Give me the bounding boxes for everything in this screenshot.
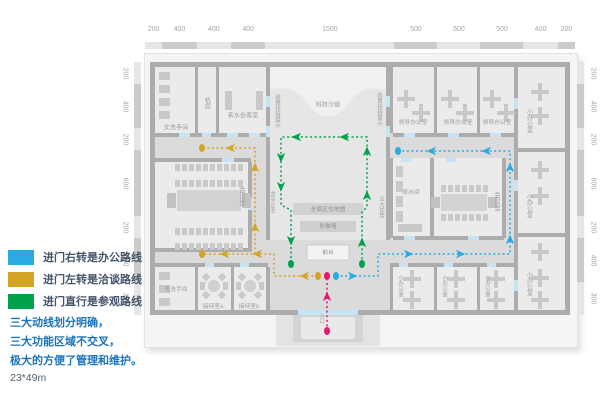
legend: 进门右转是办公路线进门左转是洽谈路线进门直行是参观路线 (8, 246, 142, 312)
chair (203, 228, 208, 235)
chair (182, 180, 187, 187)
wall (195, 267, 198, 310)
fixture (159, 98, 170, 106)
chair (210, 164, 215, 171)
desk-cross (531, 194, 549, 198)
chair (217, 180, 222, 187)
room-label: 前台 (322, 248, 334, 256)
chair (231, 243, 236, 250)
wall (390, 263, 393, 310)
table (177, 190, 241, 211)
chair (476, 214, 481, 221)
door-mark (514, 98, 518, 109)
room-label: 龙头企业 (269, 190, 276, 214)
office-route-endpoint (395, 147, 401, 155)
talk-route-endpoint (199, 250, 205, 258)
chair (182, 243, 187, 250)
legend-label: 进门右转是办公路线 (43, 249, 142, 265)
chair (189, 164, 194, 171)
table-end (167, 193, 176, 208)
chair (203, 180, 208, 187)
chair (203, 164, 208, 171)
door-mark (205, 263, 214, 267)
furniture (225, 91, 232, 110)
chair (448, 214, 453, 221)
chair (175, 228, 180, 235)
chair (182, 164, 187, 171)
room-label: 女洗手间 (164, 124, 189, 132)
note-line: 三大动线划分明确， (10, 314, 142, 333)
wall (390, 158, 393, 238)
chair (196, 164, 201, 171)
room-label: 形象墙 (319, 222, 337, 230)
round-table (244, 280, 256, 292)
desk-cross (531, 276, 549, 280)
floor-plan-page: 2004004004001500500500500400200 20040020… (0, 0, 600, 400)
door-mark (404, 236, 415, 240)
door-mark (444, 263, 453, 267)
chair (441, 214, 446, 221)
wall (434, 267, 437, 310)
wall (477, 267, 480, 310)
chair (462, 214, 467, 221)
door-mark (266, 96, 270, 107)
fixture (159, 272, 170, 280)
room-label: 领导办公室 (483, 118, 512, 126)
door-mark (386, 126, 390, 137)
room-label: 接待室a (203, 302, 224, 310)
room-label: 男洗手间 (164, 285, 187, 293)
side-table (259, 282, 264, 290)
wall (390, 67, 393, 133)
door-mark (240, 263, 249, 267)
chair (217, 228, 222, 235)
door-mark (202, 133, 211, 137)
fixture (159, 72, 170, 80)
desk-cross (531, 90, 549, 94)
door-mark (222, 158, 234, 162)
legend-swatch-visit-route (8, 294, 34, 309)
door-mark (298, 310, 358, 315)
chair (196, 243, 201, 250)
wall (477, 67, 480, 133)
wall (358, 310, 570, 315)
desk-cross (531, 298, 549, 302)
room-label: 茶水会客室 (228, 112, 259, 120)
wall (195, 67, 198, 133)
chair (462, 185, 467, 192)
chair (224, 164, 229, 171)
room-label: 小办公室 (397, 274, 404, 298)
chair (441, 185, 446, 192)
room-label: 小办公室 (441, 274, 448, 298)
fixture (396, 166, 403, 177)
chair (469, 214, 474, 221)
table (441, 194, 487, 211)
chair (231, 180, 236, 187)
office-route-endpoint (333, 272, 339, 280)
chair (469, 185, 474, 192)
wall (386, 67, 390, 240)
chair (189, 228, 194, 235)
door-mark (179, 133, 190, 137)
desk-cross (531, 168, 549, 172)
legend-label: 进门左转是洽谈路线 (43, 271, 142, 287)
chair (224, 180, 229, 187)
room-label: 政策扶持展示 (376, 91, 383, 126)
chair (238, 228, 243, 235)
room-label: 小办公室 (526, 108, 533, 134)
wall (216, 67, 219, 133)
furniture (256, 91, 263, 110)
chair (455, 214, 460, 221)
wall (266, 267, 270, 310)
chair (189, 243, 194, 250)
wall (231, 267, 234, 310)
desk-cross (412, 111, 430, 115)
chair (217, 243, 222, 250)
chair (448, 185, 453, 192)
room-label: 科技沙盘 (316, 101, 341, 109)
desk-cross (397, 97, 415, 101)
room-label: 领导办公室 (399, 118, 428, 126)
entry-route-endpoint (324, 327, 330, 335)
door-mark (386, 96, 390, 107)
fixture (396, 211, 403, 222)
desk-cross (497, 111, 515, 115)
area-size-label: 23*49m (10, 372, 46, 384)
chair (196, 180, 201, 187)
legend-swatch-talk-route (8, 272, 34, 287)
desk-cross (531, 250, 549, 254)
chair (476, 185, 481, 192)
chair (483, 214, 488, 221)
room-label: 小办公室 (526, 271, 533, 297)
door-mark (448, 133, 459, 137)
legend-swatch-office-route (8, 250, 34, 265)
chair (483, 185, 488, 192)
chair (455, 185, 460, 192)
notes: 三大动线划分明确，三大功能区域不交叉，极大的方便了管理和维护。 (10, 314, 142, 371)
room-label: 接待室b (239, 302, 260, 310)
chair (182, 228, 187, 235)
room-label: 小办公室 (526, 193, 533, 219)
desk-cross (403, 277, 421, 281)
room-label: 小办公室 (484, 274, 491, 298)
door-mark (401, 158, 412, 162)
door-mark (490, 133, 501, 137)
room-label: 五大优势 (378, 196, 385, 220)
door-mark (249, 133, 260, 137)
legend-item: 进门左转是洽谈路线 (8, 268, 142, 290)
wall (502, 158, 506, 238)
table-end (431, 197, 440, 208)
legend-item: 进门右转是办公路线 (8, 246, 142, 268)
chair (217, 164, 222, 171)
chair (175, 164, 180, 171)
chair (231, 164, 236, 171)
door-mark (468, 236, 479, 240)
wall (565, 62, 570, 315)
talk-route-endpoint (315, 272, 321, 280)
door-mark (404, 133, 415, 137)
chair (189, 180, 194, 187)
chair (196, 228, 201, 235)
wall (434, 67, 437, 133)
door-mark (266, 126, 270, 137)
fixture (396, 196, 403, 207)
desk-cross (531, 114, 549, 118)
chair (224, 228, 229, 235)
chair (238, 243, 243, 250)
fixture (159, 111, 170, 119)
wall (155, 158, 251, 162)
fixture (159, 85, 170, 93)
chair (175, 243, 180, 250)
desk-cross (447, 298, 465, 302)
wall (518, 148, 565, 152)
door-mark (399, 263, 408, 267)
fixture (159, 298, 170, 306)
room-label: 全景区位地图 (311, 205, 346, 213)
note-line: 三大功能区域不交叉， (10, 333, 142, 352)
room-label: 机房 (204, 96, 211, 110)
chair (210, 228, 215, 235)
entry-route-endpoint (324, 272, 330, 280)
desk-cross (483, 97, 501, 101)
talk-route-endpoint (199, 144, 205, 152)
desk-cross (403, 298, 421, 302)
desk-cross (456, 111, 474, 115)
chair (175, 180, 180, 187)
round-table (208, 280, 220, 292)
chair (238, 164, 243, 171)
wall (518, 233, 565, 237)
desk-cross (447, 277, 465, 281)
chair (210, 243, 215, 250)
room-label: 茶水间 (402, 188, 420, 196)
door-mark (514, 180, 518, 191)
door-mark (446, 158, 457, 162)
room-label: 领导办公室 (444, 118, 473, 126)
side-table (200, 282, 205, 290)
room-label: 政策扶持展示 (274, 93, 281, 128)
desk-cross (487, 298, 505, 302)
door-mark (227, 133, 238, 137)
chair (224, 243, 229, 250)
chair (210, 180, 215, 187)
desk-cross (441, 97, 459, 101)
side-table (223, 282, 228, 290)
wall (266, 67, 270, 240)
side-table (236, 282, 241, 290)
wall (150, 62, 155, 315)
door-mark (487, 263, 496, 267)
visit-route-endpoint (288, 260, 294, 268)
legend-item: 进门直行是参观路线 (8, 290, 142, 312)
legend-label: 进门直行是参观路线 (43, 293, 142, 309)
wall (150, 62, 570, 67)
door-mark (514, 280, 518, 291)
wall (150, 310, 298, 315)
chair (231, 228, 236, 235)
room-label: 入口 (318, 313, 325, 325)
furniture (398, 224, 422, 232)
visit-route-endpoint (359, 260, 365, 268)
note-line: 极大的方便了管理和维护。 (10, 352, 142, 371)
chair (203, 243, 208, 250)
